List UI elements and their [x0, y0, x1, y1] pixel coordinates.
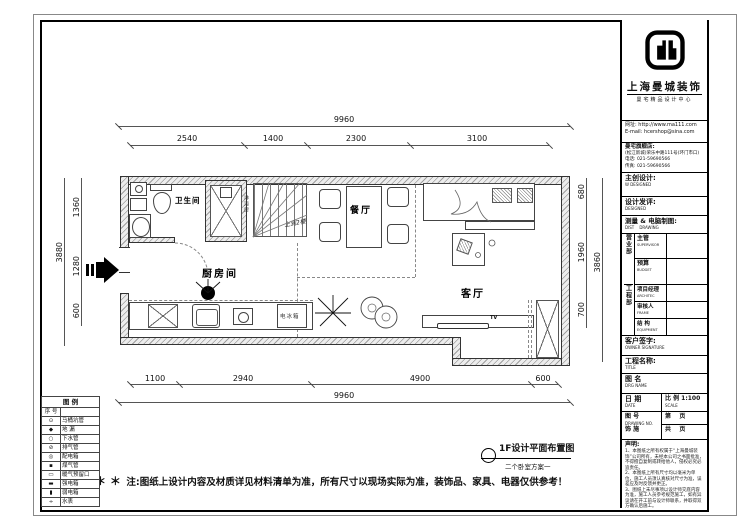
dim-label: 2540: [176, 135, 198, 143]
dim-label: 700: [578, 302, 586, 317]
date-scale-section: 日 期 DATE 比 例 1:100 SCALE: [622, 393, 707, 411]
dim-line: [586, 178, 587, 328]
shower-label: 淋浴房: [243, 195, 250, 213]
room-label-kitchen: 厨房间: [202, 265, 238, 280]
dim-label: 9960: [333, 116, 355, 124]
address-section: 曼宅旗舰店: (松江新城)荣乐中路111号(环门市口) 电话: 021-5969…: [622, 142, 707, 172]
row-structure: 结 构 EQUIPMENT: [635, 318, 707, 335]
design-review-section: 设计发评: DESIGNED: [622, 196, 707, 215]
legend-table: 图 例 序 号 ⊙马桶坑管 ◆地 漏 ○下水管 ⊘排气管 ◎配电箱 ▪煤气管 ▭…: [41, 396, 100, 507]
legend-label: 排气管: [61, 444, 100, 453]
dim-label: 1100: [144, 375, 166, 383]
legend-label: 水表: [61, 498, 100, 507]
dim-label: 3880: [56, 242, 64, 262]
kitchen-sink-bowl: [196, 309, 218, 326]
owner-signature-section: 客户签字: OWNER SIGNATURE: [622, 335, 707, 355]
chair: [319, 189, 341, 209]
entry-arrow-icon: [86, 255, 120, 285]
room-label-living: 客厅: [461, 285, 485, 300]
chief-design-en: W DESIGNED: [625, 182, 704, 187]
contact-section: 网址: http://www.ma111.com E-mail: hcersho…: [622, 120, 707, 142]
dim-label: 2940: [232, 375, 254, 383]
row-auditor: 审核人 FRAME: [635, 301, 707, 318]
dim-line: [81, 178, 82, 326]
pillow: [517, 188, 533, 203]
legend-label: 地 漏: [61, 426, 100, 435]
bay-dash: [528, 300, 529, 358]
legend-symbol: ○: [42, 435, 61, 444]
legend-label: 强电箱: [61, 480, 100, 489]
total-pages-label: 共 页: [662, 425, 707, 435]
statement-line: 1、本图纸之所有权属于“上海曼城装饰”公司所有，未经本公司之书面批准，不得擅自复…: [625, 449, 704, 471]
legend-label: 下水管: [61, 435, 100, 444]
zone-dash: [415, 185, 416, 277]
deco-label: 饰 施: [622, 425, 661, 435]
plan-title-symbol: [481, 448, 496, 463]
chief-design-section: 主创设计: W DESIGNED: [622, 172, 707, 196]
date-en: DATE: [625, 403, 658, 408]
dim-label: 4900: [409, 375, 431, 383]
plan-title: 1F设计平面布置图: [499, 441, 574, 454]
statement-line: 3、图纸上未尽事项以设计师交底内容为准，施工人员参考规范施工，如有异议请在开工前…: [625, 488, 704, 509]
dim-label: 600: [534, 375, 551, 383]
owner-sign-en: OWNER SIGNATURE: [625, 345, 704, 350]
legend-label: 暖气预留口: [61, 471, 100, 480]
sink-icon: [132, 217, 150, 237]
dim-label: 1360: [73, 197, 81, 217]
bay-window: [536, 300, 559, 358]
auditor-value: [667, 302, 707, 318]
dim-label: 680: [578, 184, 586, 199]
wall-segment: [452, 358, 570, 366]
wall-segment: [120, 337, 460, 345]
legend-title: 图 例: [42, 397, 100, 408]
auditor-label: 审核人: [637, 303, 664, 311]
dim-label: 9960: [333, 392, 355, 400]
survey-section: 测量 & 电脑制图: DIST DRAWING: [622, 215, 707, 233]
date-label: 日 期: [625, 395, 658, 403]
supervisor-en: SUPERVISOR: [637, 243, 664, 248]
project-name-label: 工程名称:: [625, 357, 704, 365]
dim-label: 3860: [594, 252, 602, 272]
statement-title: 声明:: [625, 441, 704, 449]
scale-en: SCALE: [665, 403, 704, 408]
legend-symbol: ◎: [42, 453, 61, 462]
legend-symbol: ▭: [42, 471, 61, 480]
room-label-dining: 餐厅: [350, 203, 372, 216]
dim-label: 1960: [578, 242, 586, 262]
structure-label: 结 构: [637, 320, 664, 328]
legend-col-no: 序 号: [42, 408, 61, 417]
wall-segment: [561, 176, 570, 366]
legend-symbol: ◆: [42, 426, 61, 435]
statement-line: 2、本图纸上所有尺寸均以毫米为单位，施工人员须认真核对尺寸为准，误差应及时反馈并…: [625, 471, 704, 488]
row-supervisor: 主管 SUPERVISOR: [635, 234, 707, 258]
legend-symbol: ÷: [42, 498, 61, 507]
tv-label: TV: [490, 315, 497, 321]
dept-sales-label: 营业部: [624, 234, 633, 285]
legend-symbol: ▪: [42, 462, 61, 471]
budget-label: 预算: [637, 260, 664, 268]
legend-label: 马桶坑管: [61, 417, 100, 426]
fridge-label: 电冰箱: [280, 312, 300, 320]
survey-en: DIST DRAWING: [625, 225, 704, 230]
drawing-sheet: 淋浴房 上到2楼 卫生间 餐厅 电冰箱 厨房间 客厅: [0, 0, 750, 530]
kitchen-washer: [148, 304, 178, 328]
stove-burner: [238, 312, 249, 323]
dim-label: 600: [73, 303, 81, 318]
toilet-tank: [150, 184, 172, 191]
survey-label: 测量 & 电脑制图:: [625, 217, 704, 225]
scale-label: 比 例 1:100: [665, 395, 704, 403]
room-label-bath: 卫生间: [175, 195, 201, 206]
legend-label: 弱电箱: [61, 489, 100, 498]
design-review-label: 设计发评:: [625, 198, 704, 206]
door-opening: [119, 247, 130, 273]
title-block: 上海曼城装饰 曼宅精品设计中心 网址: http://www.ma111.com…: [620, 20, 707, 508]
legend-label: 配电箱: [61, 453, 100, 462]
structure-en: EQUIPMENT: [637, 328, 664, 333]
legend-symbol: ⊘: [42, 444, 61, 453]
budget-en: BUDGET: [637, 268, 664, 273]
row-pm: 项目经理 ARCHITEC: [635, 284, 707, 301]
drg-name-section: 图 名 DRG NAME: [622, 373, 707, 393]
design-review-en: DESIGNED: [625, 206, 704, 211]
structure-value: [667, 319, 707, 335]
chair: [387, 187, 409, 207]
legend-label: 煤气管: [61, 462, 100, 471]
tv-icon: [437, 323, 489, 329]
pm-label: 项目经理: [637, 286, 664, 294]
counter-dash: [129, 300, 313, 301]
dept-eng-label: 工程部: [624, 285, 633, 336]
auditor-en: FRAME: [637, 311, 664, 316]
supervisor-value: [667, 234, 707, 258]
sheet-inner-frame: [40, 20, 709, 512]
chair: [319, 222, 341, 242]
washer-knob: [135, 185, 143, 193]
company-email: E-mail: hcershop@sina.com: [625, 129, 704, 136]
legend-symbol: ⊙: [42, 417, 61, 426]
sheet-note: ＊ ＊ 注:图纸上设计内容及材质详见材料清单为准，所有尺寸以现场实际为准，装饰品…: [95, 470, 605, 489]
dim-label: 3100: [466, 135, 488, 143]
drg-name-label: 图 名: [625, 375, 704, 383]
statement-section: 声明: 1、本图纸之所有权属于“上海曼城装饰”公司所有，未经本公司之书面批准，不…: [622, 439, 707, 508]
project-name-en: TITLE: [625, 365, 704, 370]
dim-label: 1280: [73, 256, 81, 276]
company-name: 上海曼城装饰: [627, 79, 702, 95]
note-text: 注:图纸上设计内容及材质详见材料清单为准，所有尺寸以现场实际为准，装饰品、家具、…: [126, 477, 567, 488]
company-website: 网址: http://www.ma111.com: [625, 122, 704, 129]
project-name-section: 工程名称: TITLE: [622, 355, 707, 373]
drawing-no-label: 图 号: [625, 413, 658, 421]
dining-table: [346, 186, 382, 248]
dim-line: [118, 126, 570, 127]
legend-symbol: ▬: [42, 480, 61, 489]
store-fax: 传真: 021-59690566: [625, 164, 704, 171]
dim-line: [118, 402, 570, 403]
budget-value: [667, 259, 707, 284]
dim-label: 2300: [345, 135, 367, 143]
dim-line: [602, 178, 603, 362]
company-section: 上海曼城装饰 曼宅精品设计中心: [622, 20, 707, 120]
drg-name-en: DRG NAME: [625, 383, 704, 388]
bath-cabinet: [130, 198, 147, 211]
legend-symbol: ▮: [42, 489, 61, 498]
chief-design-label: 主创设计:: [625, 174, 704, 182]
dim-line: [130, 145, 549, 146]
page-no-label: 第 页: [662, 412, 707, 425]
dim-label: 1400: [262, 135, 284, 143]
plant-icon: [201, 286, 215, 300]
plan-title-rule: [481, 458, 571, 459]
vent-square: [220, 187, 232, 198]
bed-bench: [465, 221, 535, 230]
stairs: [253, 183, 307, 237]
zone-dash: [297, 277, 415, 278]
dim-line: [130, 384, 558, 385]
bay-dash: [531, 300, 532, 358]
pm-value: [667, 285, 707, 301]
departments-table: 营业部 工程部 主管 SUPERVISOR 预算 BUDGET: [622, 233, 707, 335]
supervisor-label: 主管: [637, 235, 664, 243]
row-budget: 预算 BUDGET: [635, 258, 707, 284]
owner-sign-label: 客户签字:: [625, 337, 704, 345]
pillow: [492, 188, 512, 203]
drawing-no-section: 图 号 DRAWING NO. 饰 施 第 页 共 页: [622, 411, 707, 439]
chair: [387, 224, 409, 244]
company-subtitle: 曼宅精品设计中心: [625, 96, 704, 103]
dim-line: [64, 178, 65, 346]
pm-en: ARCHITEC: [637, 294, 664, 299]
company-logo-icon: [644, 29, 686, 71]
